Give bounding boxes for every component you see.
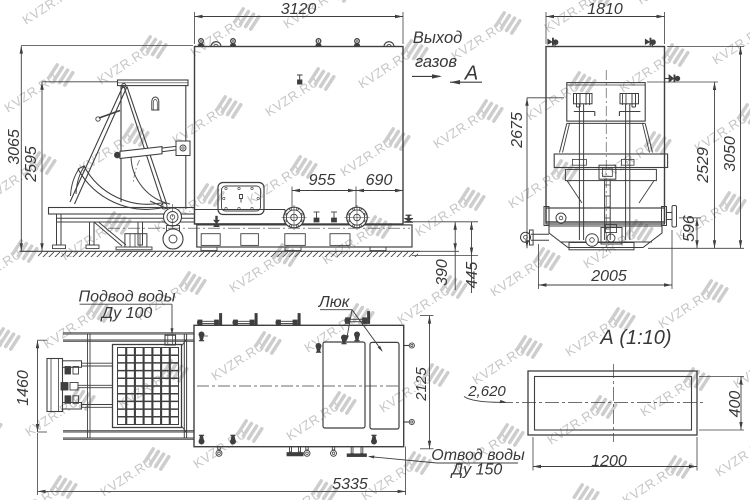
svg-text:390: 390 (434, 259, 451, 286)
svg-text:газов: газов (415, 53, 457, 71)
svg-text:Подвод воды: Подвод воды (78, 289, 175, 306)
svg-text:3120: 3120 (281, 1, 317, 18)
svg-text:400: 400 (727, 391, 744, 418)
svg-text:1460: 1460 (15, 370, 32, 406)
svg-text:2,620: 2,620 (467, 383, 506, 400)
svg-text:1810: 1810 (587, 1, 623, 18)
svg-text:2005: 2005 (590, 268, 627, 285)
svg-text:2595: 2595 (23, 146, 40, 183)
svg-text:596: 596 (681, 215, 698, 242)
svg-text:955: 955 (309, 172, 336, 189)
svg-text:Ду 100: Ду 100 (100, 305, 153, 322)
svg-text:5335: 5335 (332, 476, 368, 493)
svg-text:445: 445 (464, 262, 481, 289)
svg-text:Ду 150: Ду 150 (450, 462, 503, 479)
svg-text:А (1:10): А (1:10) (599, 327, 671, 349)
svg-text:3065: 3065 (6, 129, 23, 165)
svg-text:2675: 2675 (509, 112, 526, 149)
svg-text:1200: 1200 (591, 453, 627, 470)
svg-text:690: 690 (366, 172, 393, 189)
svg-text:2125: 2125 (413, 367, 430, 402)
svg-text:Выход: Выход (413, 29, 463, 47)
svg-text:3050: 3050 (722, 136, 739, 172)
svg-text:2529: 2529 (695, 147, 712, 184)
svg-text:А: А (464, 63, 478, 85)
svg-text:Люк: Люк (318, 294, 351, 311)
